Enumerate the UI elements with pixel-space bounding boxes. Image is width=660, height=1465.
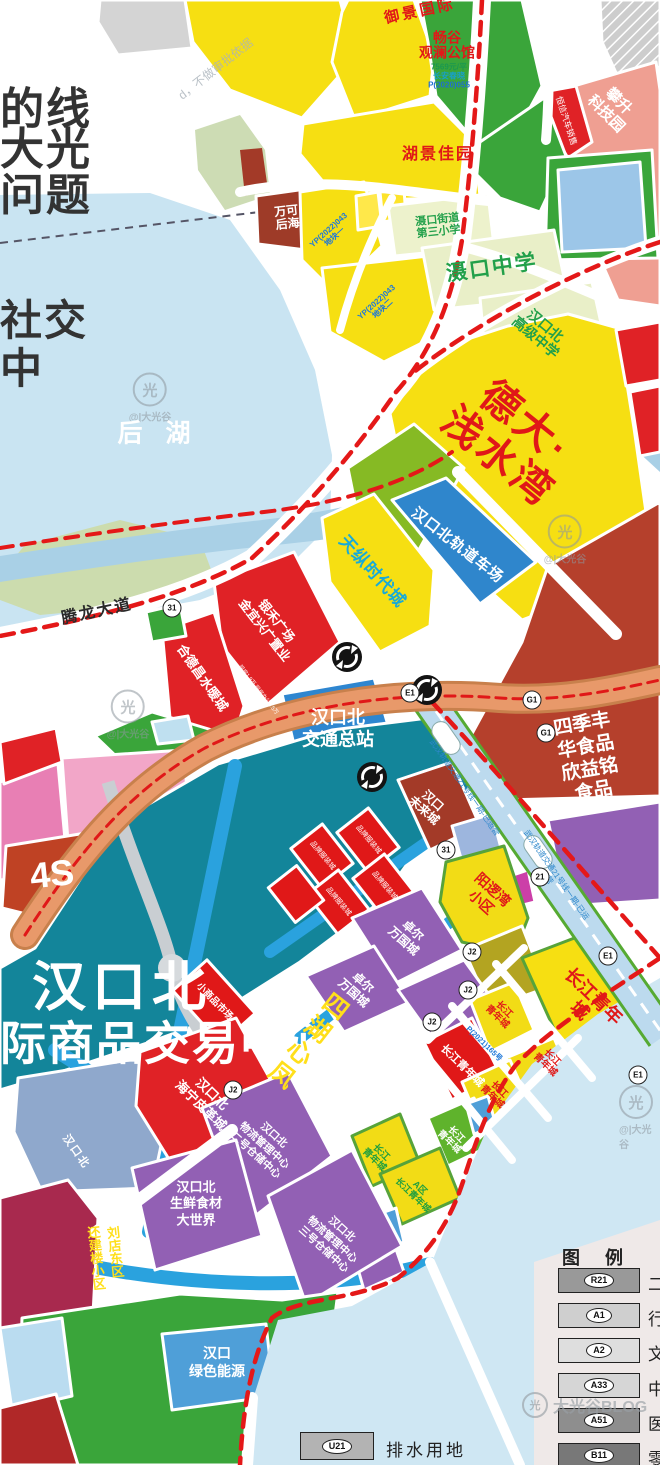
watermark-seal-icon: 光 <box>111 690 145 724</box>
watermark-logo: 光 @|大光谷 <box>544 515 587 566</box>
overlay-text-line5: 中 <box>0 348 44 390</box>
watermark-logo: 光 @|大光谷 <box>107 690 150 741</box>
blog-watermark: 光 大光谷BLOG <box>522 1392 647 1418</box>
road-code-badge: J2 <box>423 1013 442 1032</box>
road-code-badge: J2 <box>459 981 478 1000</box>
road-code-badge: 31 <box>437 841 456 860</box>
blog-watermark-text: 大光谷BLOG <box>553 1393 647 1417</box>
road-code-badge: 31 <box>163 599 182 618</box>
watermark-logo: 光 @|大光谷 <box>129 373 172 424</box>
road-code-badge: 21 <box>531 868 550 887</box>
blog-logo-icon: 光 <box>522 1392 548 1418</box>
watermark-text: @|大光谷 <box>107 726 150 741</box>
road-code-badge: G1 <box>537 724 556 743</box>
roundabout-icon <box>332 642 362 672</box>
road-code-badge: J2 <box>463 943 482 962</box>
roundabout-icon <box>357 762 387 792</box>
watermark-text: @|大光谷 <box>619 1121 653 1151</box>
road-code-badge: E1 <box>401 684 420 703</box>
watermark-seal-icon: 光 <box>548 515 582 549</box>
road-code-badge: G1 <box>523 691 542 710</box>
watermark-seal-icon: 光 <box>133 373 167 407</box>
watermark-text: @|大光谷 <box>129 409 172 424</box>
planning-map: 的线 大光 问题 社交 中 d，不做审批依据 光 @|大光谷 光 @|大光谷 光… <box>0 0 660 1465</box>
road-code-badge: E1 <box>629 1066 648 1085</box>
watermark-logo: 光 @|大光谷 <box>619 1085 653 1151</box>
overlay-text-line3: 问题 <box>0 174 92 218</box>
basemap-svg <box>0 0 660 1465</box>
legend-panel-bg <box>534 1220 660 1465</box>
watermark-seal-icon: 光 <box>619 1085 653 1119</box>
road-code-badge: E1 <box>599 947 618 966</box>
overlay-text-line2: 大光 <box>0 128 92 172</box>
road-code-badge: J2 <box>224 1081 243 1100</box>
watermark-text: @|大光谷 <box>544 551 587 566</box>
overlay-text-line4: 社交 <box>0 300 88 342</box>
